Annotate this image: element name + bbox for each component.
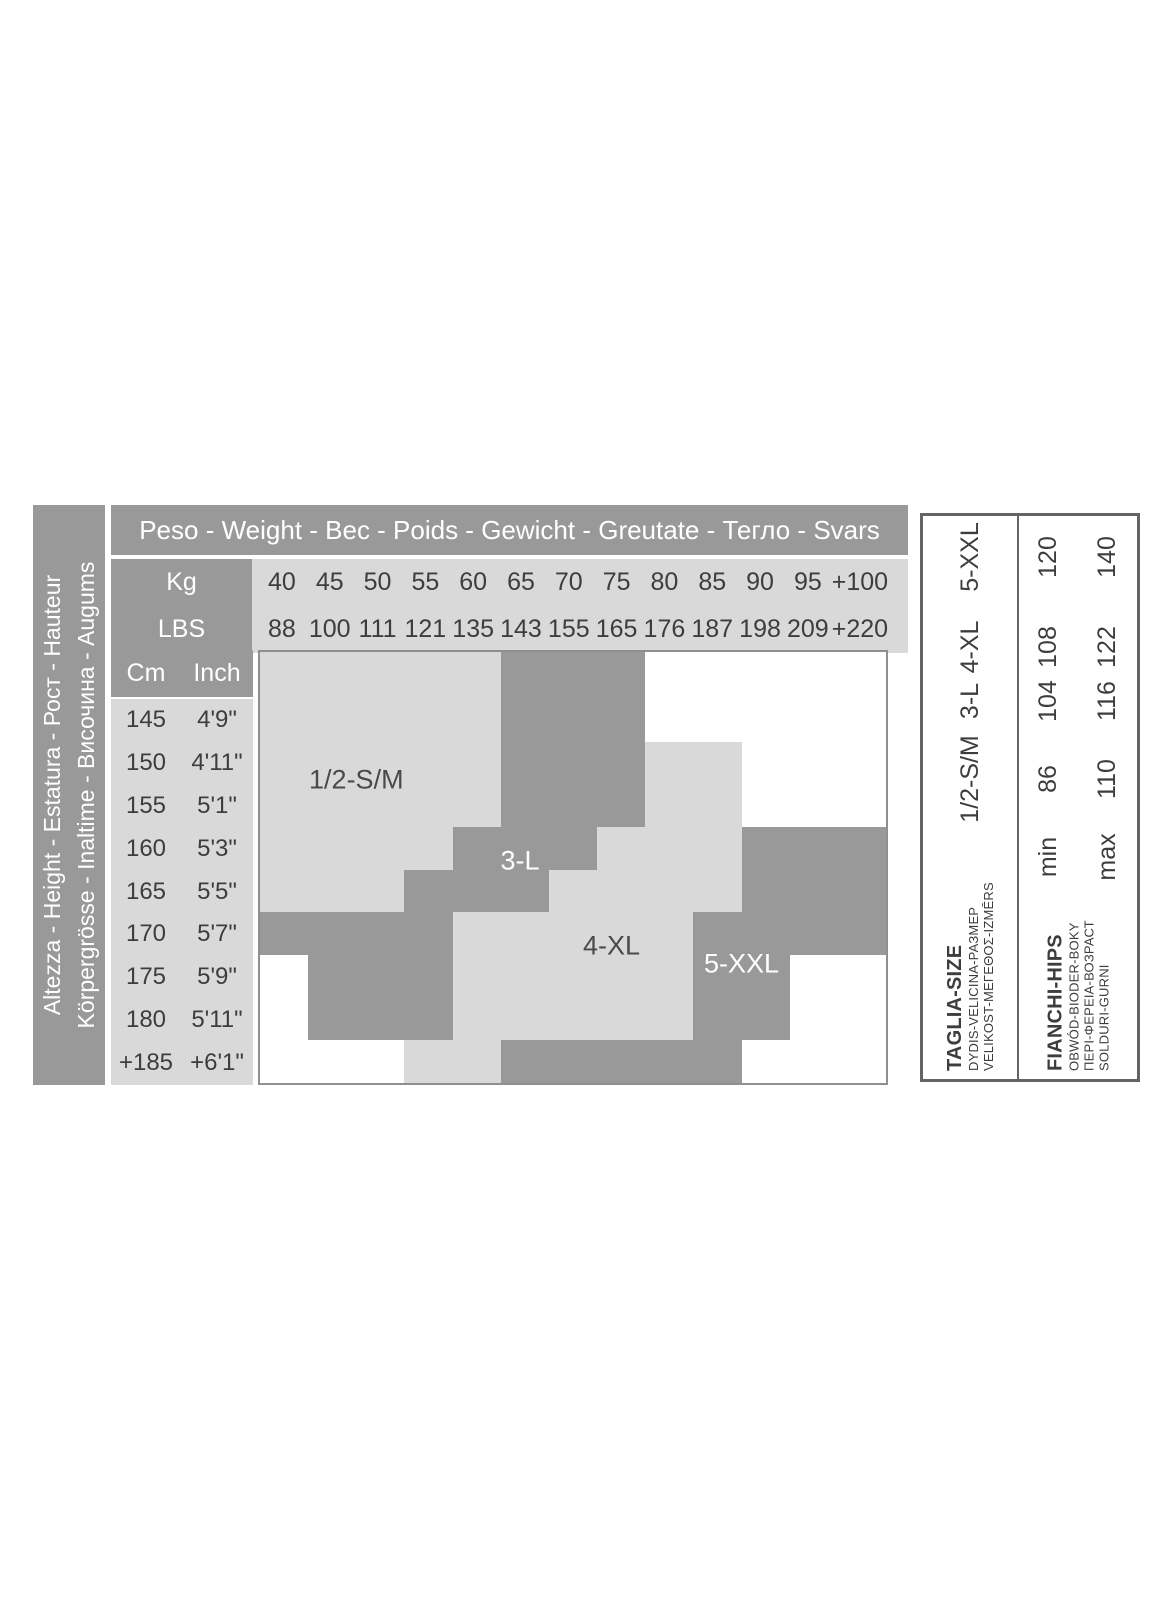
height-unit-header: Cm Inch xyxy=(111,650,253,697)
size-column: TAGLIA-SIZE DYDIS-VELICINA-РАЗМЕР VELIKO… xyxy=(923,516,1017,1079)
height-cm-value: 165 xyxy=(111,871,181,914)
zone-xl-rect xyxy=(453,912,694,1040)
weight-kg-value: 70 xyxy=(545,559,593,606)
hips-min-label: min xyxy=(1019,822,1078,892)
hips-max-value: 122 xyxy=(1078,602,1137,692)
height-cm-value: 155 xyxy=(111,785,181,828)
weight-lbs-value: 143 xyxy=(497,606,545,653)
weight-lbs-value: 121 xyxy=(401,606,449,653)
weight-lbs-value: 176 xyxy=(641,606,689,653)
height-axis-line2: Körpergrösse - Inaltime - Височина - Aug… xyxy=(69,505,103,1085)
height-row: 1805'11" xyxy=(111,999,253,1042)
size-chart-sheet: Altezza - Height - Estatura - Рост - Hau… xyxy=(0,0,1166,1600)
weight-kg-value: +100 xyxy=(832,559,888,606)
weight-lbs-value: 111 xyxy=(354,606,402,653)
inch-unit-label: Inch xyxy=(181,650,253,697)
hips-min-value: 108 xyxy=(1019,602,1078,692)
cm-unit-label: Cm xyxy=(111,650,181,697)
height-row: +185+6'1" xyxy=(111,1042,253,1085)
weight-kg-value: 90 xyxy=(736,559,784,606)
weight-lbs-value: +220 xyxy=(832,606,888,653)
weight-lbs-value: 155 xyxy=(545,606,593,653)
height-row: 1454'9" xyxy=(111,699,253,742)
weight-kg-value: 85 xyxy=(688,559,736,606)
weight-kg-value: 60 xyxy=(449,559,497,606)
weight-kg-value: 75 xyxy=(593,559,641,606)
kg-values-row: 404550556065707580859095+100 xyxy=(258,559,888,606)
size-header-sub1: DYDIS-VELICINA-РАЗМЕР xyxy=(966,882,981,1071)
size-hips-panel-inner: TAGLIA-SIZE DYDIS-VELICINA-РАЗМЕР VELIKO… xyxy=(923,516,1137,1079)
size-header-block: TAGLIA-SIZE DYDIS-VELICINA-РАЗМЕР VELIKO… xyxy=(944,882,996,1071)
height-cm-value: +185 xyxy=(111,1042,181,1085)
height-inch-value: 5'1" xyxy=(181,785,253,828)
height-cm-value: 180 xyxy=(111,999,181,1042)
hips-max-label: max xyxy=(1078,822,1137,892)
height-row: 1705'7" xyxy=(111,913,253,956)
height-cm-value: 160 xyxy=(111,828,181,871)
height-inch-value: 5'11" xyxy=(181,999,253,1042)
zone-sm-rect xyxy=(260,870,404,913)
weight-lbs-value: 100 xyxy=(306,606,354,653)
weight-kg-value: 80 xyxy=(641,559,689,606)
weight-values-strip: 404550556065707580859095+100 88100111121… xyxy=(252,559,908,653)
hips-max-value: 140 xyxy=(1078,512,1137,602)
zone-xxl-rect xyxy=(501,1040,742,1083)
height-axis-labels: Altezza - Height - Estatura - Рост - Hau… xyxy=(33,505,107,1085)
zone-sm-label: 1/2-S/M xyxy=(309,765,404,796)
hips-max-value: 110 xyxy=(1078,734,1137,824)
height-row: 1504'11" xyxy=(111,742,253,785)
zone-xl-rect xyxy=(404,1040,500,1083)
height-inch-value: 5'7" xyxy=(181,913,253,956)
lbs-unit-label: LBS xyxy=(111,606,252,653)
zone-xxl-label: 5-XXL xyxy=(704,948,779,979)
height-cm-value: 170 xyxy=(111,913,181,956)
weight-kg-value: 50 xyxy=(354,559,402,606)
hips-max-row: max 110116122140 xyxy=(1078,516,1137,1079)
zone-l-rect xyxy=(260,912,453,955)
zone-xl-rect xyxy=(549,870,742,913)
weight-kg-value: 45 xyxy=(306,559,354,606)
height-row: 1655'5" xyxy=(111,871,253,914)
weight-lbs-value: 198 xyxy=(736,606,784,653)
hips-min-value: 86 xyxy=(1019,734,1078,824)
height-values-table: 1454'9"1504'11"1555'1"1605'3"1655'5"1705… xyxy=(111,699,253,1085)
zone-xl-rect xyxy=(597,827,741,870)
height-inch-value: 5'9" xyxy=(181,956,253,999)
zone-xxl-rect xyxy=(742,827,886,912)
weight-lbs-value: 135 xyxy=(449,606,497,653)
size-zone-chart: 1/2-S/M3-L4-XL5-XXL xyxy=(258,650,888,1085)
height-inch-value: 5'3" xyxy=(181,828,253,871)
size-zone-plot-area: 1/2-S/M3-L4-XL5-XXL xyxy=(260,652,886,1083)
height-inch-value: 4'11" xyxy=(181,742,253,785)
zone-xl-label: 4-XL xyxy=(583,931,640,962)
weight-lbs-value: 88 xyxy=(258,606,306,653)
kg-unit-label: Kg xyxy=(111,559,252,606)
height-inch-value: 4'9" xyxy=(181,699,253,742)
height-axis-line1: Altezza - Height - Estatura - Рост - Hau… xyxy=(35,505,69,1085)
weight-unit-labels: Kg LBS xyxy=(111,559,252,653)
weight-kg-value: 40 xyxy=(258,559,306,606)
size-header-sub2: VELIKOST-ΜΕΓΕΘΟΣ-IZMĒRS xyxy=(981,882,996,1071)
height-axis-bar: Altezza - Height - Estatura - Рост - Hau… xyxy=(33,505,105,1085)
weight-kg-value: 65 xyxy=(497,559,545,606)
weight-kg-value: 95 xyxy=(784,559,832,606)
height-inch-value: 5'5" xyxy=(181,871,253,914)
lbs-values-row: 88100111121135143155165176187198209+220 xyxy=(258,606,888,653)
height-row: 1755'9" xyxy=(111,956,253,999)
zone-l-rect xyxy=(501,652,645,827)
zone-sm-rect xyxy=(260,652,501,827)
height-row: 1555'1" xyxy=(111,785,253,828)
height-row: 1605'3" xyxy=(111,828,253,871)
weight-lbs-value: 187 xyxy=(688,606,736,653)
weight-lbs-value: 209 xyxy=(784,606,832,653)
size-header-title: TAGLIA-SIZE xyxy=(944,882,966,1071)
height-cm-value: 145 xyxy=(111,699,181,742)
size-label: 5-XXL xyxy=(923,502,1017,612)
zone-xl-rect xyxy=(645,742,741,827)
zone-l-label: 3-L xyxy=(501,846,540,877)
weight-kg-value: 55 xyxy=(401,559,449,606)
zone-l-rect xyxy=(308,955,452,1040)
weight-lbs-value: 165 xyxy=(593,606,641,653)
size-hips-panel: TAGLIA-SIZE DYDIS-VELICINA-РАЗМЕР VELIKO… xyxy=(920,513,1140,1082)
height-cm-value: 175 xyxy=(111,956,181,999)
hips-column: FIANCHI-HIPS OBWÓD-BIODER-BOKY ΠΕΡΙ-ΦΕΡΕ… xyxy=(1019,516,1137,1079)
hips-min-row: min 86104108120 xyxy=(1019,516,1078,1079)
zone-sm-rect xyxy=(260,827,453,870)
height-cm-value: 150 xyxy=(111,742,181,785)
weight-axis-title: Peso - Weight - Вес - Poids - Gewicht - … xyxy=(111,505,908,555)
height-inch-value: +6'1" xyxy=(181,1042,253,1085)
hips-min-value: 120 xyxy=(1019,512,1078,602)
